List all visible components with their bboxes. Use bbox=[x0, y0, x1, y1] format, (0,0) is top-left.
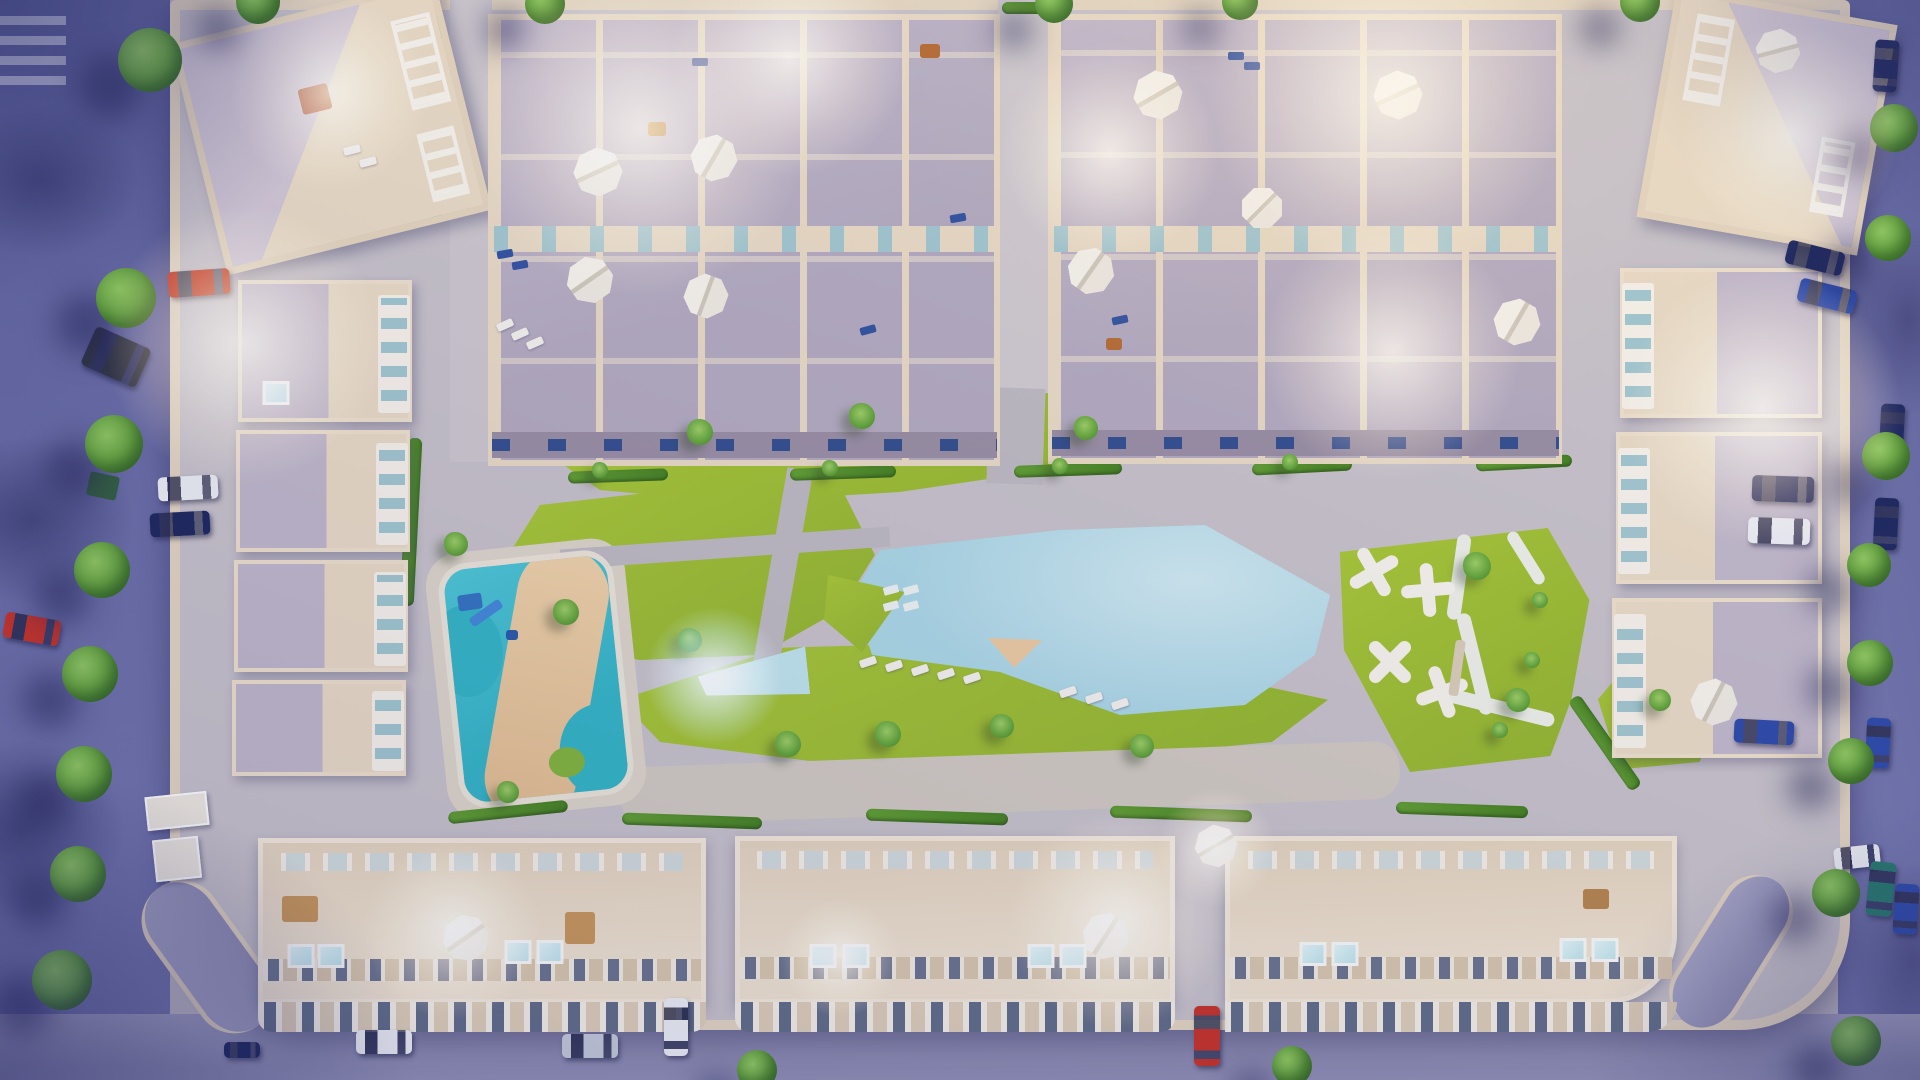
rooftop-jacuzzi-glass bbox=[505, 940, 532, 964]
rooftop-jacuzzi-glass bbox=[1028, 944, 1055, 968]
street-tree bbox=[85, 415, 143, 473]
street-tree bbox=[56, 746, 112, 802]
palm-tree bbox=[990, 714, 1014, 738]
parked-car-navy bbox=[1752, 475, 1815, 503]
palm-tree bbox=[1492, 722, 1508, 738]
kids-water-park-pool bbox=[436, 547, 637, 810]
street-tree bbox=[1847, 543, 1891, 587]
west-house-row bbox=[232, 680, 406, 776]
street-tree bbox=[1812, 869, 1860, 917]
palm-tree bbox=[592, 462, 608, 478]
south-facade-base bbox=[1225, 1002, 1677, 1032]
street-tree bbox=[1862, 432, 1910, 480]
gatehouse-kiosk bbox=[144, 791, 209, 831]
street-tree bbox=[50, 846, 106, 902]
street-tree bbox=[74, 542, 130, 598]
rooftop-jacuzzi-glass bbox=[318, 944, 345, 968]
south-facade-windows bbox=[1052, 430, 1559, 456]
skylight-band bbox=[494, 226, 994, 252]
east-house-row bbox=[1620, 268, 1822, 418]
rooftop-jacuzzi-glass bbox=[1592, 938, 1619, 962]
rooftop-jacuzzi-glass bbox=[810, 944, 837, 968]
terrace-furniture bbox=[648, 122, 666, 136]
palm-tree bbox=[1524, 652, 1540, 668]
rooftop-jacuzzi-glass bbox=[843, 944, 870, 968]
parked-car-red bbox=[167, 268, 231, 298]
palm-tree bbox=[822, 460, 838, 476]
skylight-row bbox=[281, 853, 684, 871]
townhouse-block-northwest bbox=[488, 14, 1000, 466]
palm-tree bbox=[553, 599, 579, 625]
pergola bbox=[390, 12, 451, 111]
pergola bbox=[1809, 137, 1856, 218]
east-house-row bbox=[1616, 432, 1822, 584]
palm-tree bbox=[678, 628, 702, 652]
palm-tree bbox=[1649, 689, 1671, 711]
pergola bbox=[416, 125, 470, 202]
townhouse-block-northeast bbox=[1048, 14, 1562, 464]
parked-car-blue bbox=[1892, 883, 1919, 935]
terrace-furniture bbox=[506, 630, 518, 640]
palm-tree bbox=[849, 403, 875, 429]
skylight-row bbox=[1248, 851, 1655, 869]
palm-tree bbox=[497, 781, 519, 803]
patio-umbrella bbox=[1242, 188, 1282, 228]
south-facade-windows bbox=[492, 432, 997, 458]
street-tree bbox=[1828, 738, 1874, 784]
street-tree bbox=[1865, 215, 1911, 261]
palm-tree bbox=[1282, 454, 1298, 470]
palm-tree bbox=[1506, 688, 1530, 712]
west-house-row bbox=[236, 430, 410, 552]
terrace-furniture bbox=[1583, 889, 1609, 909]
rooftop-jacuzzi-glass bbox=[1332, 942, 1359, 966]
parked-car-navy bbox=[1873, 497, 1900, 550]
rooftop-jacuzzi-glass bbox=[263, 381, 290, 405]
street-tree bbox=[32, 950, 92, 1010]
terrace-furniture bbox=[282, 896, 318, 922]
parked-car-navy bbox=[224, 1042, 260, 1058]
street-tree bbox=[1847, 640, 1893, 686]
palm-tree bbox=[1532, 592, 1548, 608]
sun-lounger-blue bbox=[692, 58, 708, 66]
palm-tree bbox=[444, 532, 468, 556]
parked-car-white bbox=[1748, 517, 1811, 545]
south-building-east bbox=[1225, 836, 1677, 1004]
rooftop-jacuzzi-glass bbox=[288, 944, 315, 968]
palm-tree bbox=[1074, 416, 1098, 440]
rooftop-jacuzzi-glass bbox=[1060, 944, 1087, 968]
south-facade-base bbox=[258, 1002, 706, 1032]
parked-car-blue bbox=[1733, 718, 1794, 745]
street-tree bbox=[1831, 1016, 1881, 1066]
street-tree bbox=[96, 268, 156, 328]
parked-car-silver bbox=[562, 1034, 618, 1058]
rooftop-jacuzzi-glass bbox=[1300, 942, 1327, 966]
west-house-row bbox=[234, 560, 408, 672]
palm-tree bbox=[1052, 458, 1068, 474]
pergola bbox=[1682, 13, 1735, 106]
parked-car-white bbox=[664, 998, 688, 1056]
gatehouse-kiosk bbox=[152, 836, 202, 883]
terrace-furniture bbox=[457, 592, 483, 611]
sun-lounger-blue bbox=[1244, 62, 1260, 70]
street-tree bbox=[1272, 1046, 1312, 1080]
palm-tree bbox=[1130, 734, 1154, 758]
parked-car-white bbox=[157, 474, 218, 501]
terrace-window-row bbox=[740, 957, 1170, 979]
palm-tree bbox=[1463, 552, 1491, 580]
south-building-west bbox=[258, 838, 706, 1004]
street-tree bbox=[118, 28, 182, 92]
crosswalk bbox=[0, 16, 66, 92]
street-tree bbox=[1870, 104, 1918, 152]
parked-car-navy bbox=[149, 510, 210, 537]
playground-structure bbox=[1363, 635, 1417, 689]
terrace-furniture bbox=[1106, 338, 1122, 350]
palm-tree bbox=[775, 731, 801, 757]
sun-lounger-blue bbox=[1228, 52, 1244, 60]
palm-tree bbox=[875, 721, 901, 747]
rooftop-jacuzzi-glass bbox=[537, 940, 564, 964]
south-facade-base bbox=[735, 1002, 1175, 1032]
aerial-render bbox=[0, 0, 1920, 1080]
parked-car-white bbox=[356, 1030, 412, 1054]
terrace-furniture bbox=[565, 912, 595, 944]
skylight-row bbox=[757, 851, 1153, 869]
parked-car-navy bbox=[1872, 39, 1900, 93]
skylight-band bbox=[1054, 226, 1556, 252]
parked-car-red bbox=[1194, 1006, 1220, 1066]
palm-tree bbox=[687, 419, 713, 445]
street-tree bbox=[62, 646, 118, 702]
terrace-furniture bbox=[920, 44, 940, 58]
rooftop-jacuzzi-glass bbox=[1560, 938, 1587, 962]
